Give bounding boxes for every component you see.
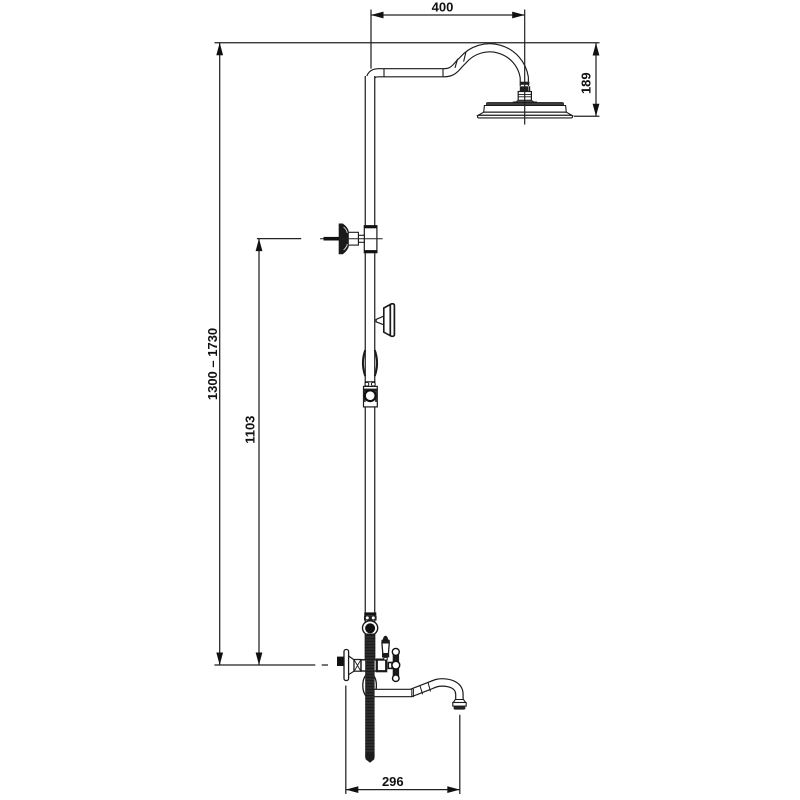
svg-text:400: 400 [432,0,454,14]
svg-text:296: 296 [382,774,404,789]
svg-text:1300 – 1730: 1300 – 1730 [205,328,220,400]
svg-text:189: 189 [579,72,594,94]
svg-text:1103: 1103 [242,416,257,444]
